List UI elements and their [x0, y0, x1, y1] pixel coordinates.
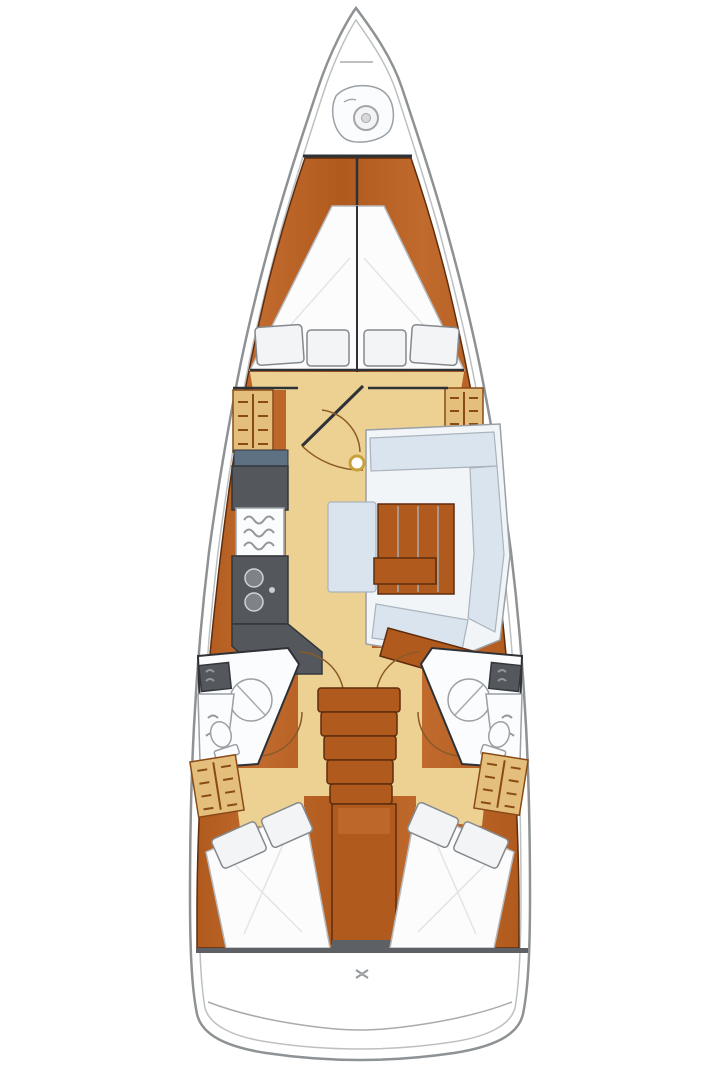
anchor-windlass-icon — [333, 86, 394, 143]
sink-port — [199, 663, 232, 692]
v-berth-pillow — [364, 330, 406, 366]
companionway-steps — [318, 688, 400, 804]
galley-stove — [236, 508, 284, 556]
sink-starboard — [489, 663, 522, 692]
mast-step — [350, 456, 364, 470]
aft-drawers-starboard — [474, 753, 528, 816]
galley-sink-unit — [232, 556, 288, 624]
galley-counter — [232, 466, 288, 510]
center-bench — [328, 502, 376, 592]
nav-locker — [374, 558, 436, 584]
v-berth-pillow — [255, 324, 305, 365]
floor-plan-canvas — [0, 0, 719, 1080]
sailboat-floor-plan — [0, 0, 719, 1080]
v-berth-pillow — [410, 324, 460, 365]
v-berth-pillow — [307, 330, 349, 366]
engine-compartment — [332, 804, 396, 952]
aft-drawers-port — [190, 755, 244, 818]
forward-locker-port — [233, 390, 273, 452]
